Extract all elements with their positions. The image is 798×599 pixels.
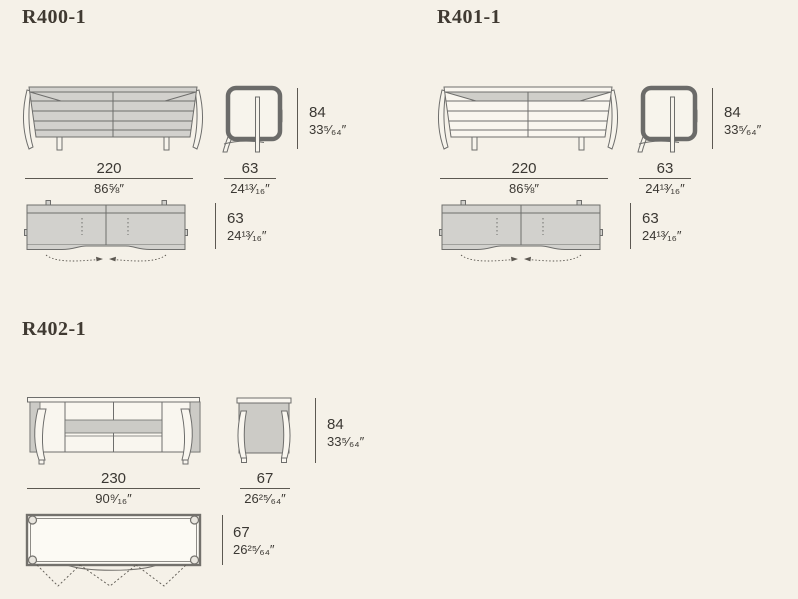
depth-dimension-r402: 67 26²⁵⁄₆₄″	[240, 471, 290, 506]
height-dimension-line-r402	[315, 398, 316, 463]
top-depth-dimension-r402: 67 26²⁵⁄₆₄″	[233, 524, 275, 558]
side-view-drawing-r402	[234, 396, 294, 466]
height-cm: 84	[327, 416, 364, 433]
depth-cm: 67	[240, 471, 290, 489]
width-cm: 230	[27, 471, 200, 489]
front-view-drawing-r402	[22, 396, 205, 465]
top-view-drawing-r402	[24, 510, 205, 595]
top-depth-inches: 26²⁵⁄₆₄″	[233, 541, 275, 558]
model-r402-section: R402-1 230 9	[0, 0, 798, 599]
width-dimension-r402: 230 90⁹⁄₁₆″	[27, 471, 200, 506]
sideboard-front	[28, 398, 201, 465]
top-depth-line-r402	[222, 515, 223, 565]
model-title-r402: R402-1	[22, 318, 86, 341]
dimension-sheet: { "sheet": { "type": "furniture dimensio…	[0, 0, 798, 599]
sideboard-top	[27, 515, 200, 586]
top-depth-cm: 67	[233, 524, 275, 541]
depth-inches: 26²⁵⁄₆₄″	[216, 489, 314, 506]
sideboard-side	[237, 398, 291, 463]
width-inches: 90⁹⁄₁₆″	[3, 489, 224, 506]
height-dimension-r402: 84 33⁵⁄₆₄″	[327, 416, 364, 450]
height-inches: 33⁵⁄₆₄″	[327, 433, 364, 450]
